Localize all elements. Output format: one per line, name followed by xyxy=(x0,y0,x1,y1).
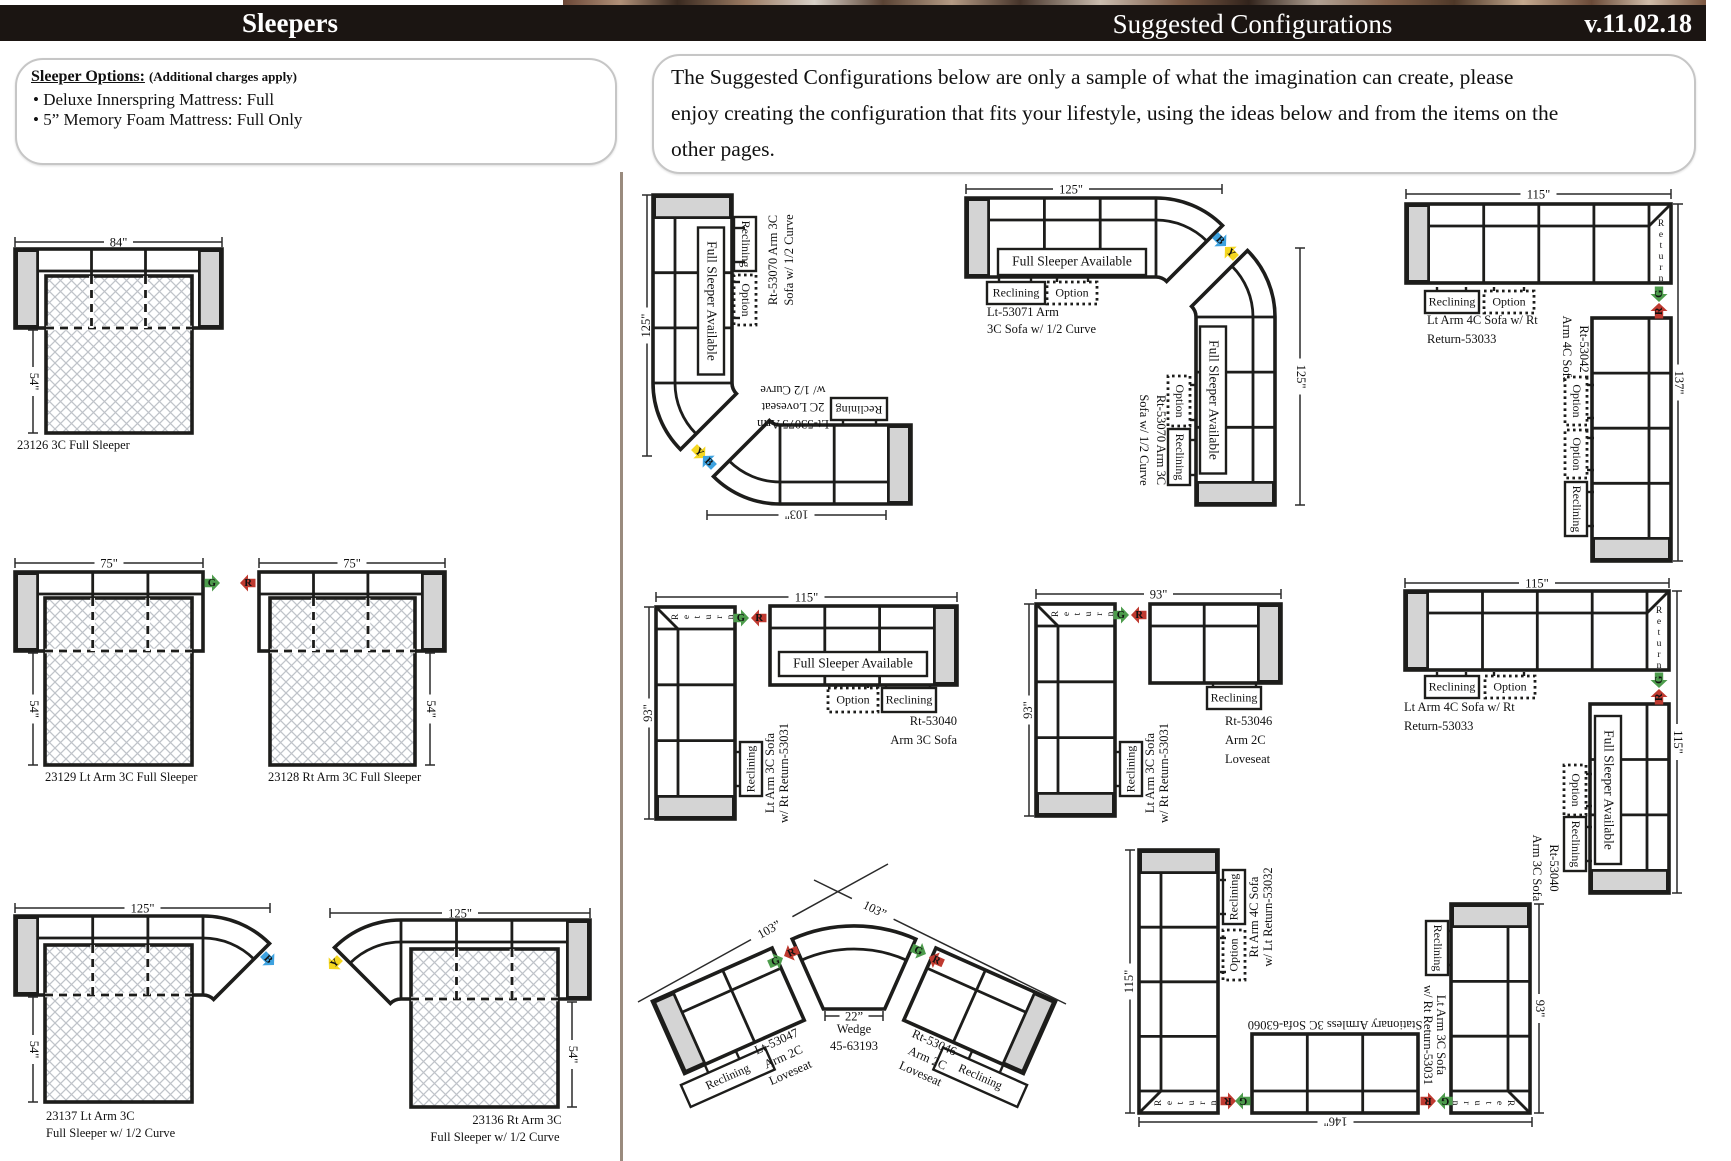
svg-text:Wedge: Wedge xyxy=(837,1022,872,1036)
svg-text:w/ Rt Return-53031: w/ Rt Return-53031 xyxy=(1421,985,1435,1085)
svg-text:54": 54" xyxy=(27,700,41,718)
svg-text:Full Sleeper Available: Full Sleeper Available xyxy=(1012,254,1132,269)
svg-text:Arm 4C Sofa: Arm 4C Sofa xyxy=(1560,316,1574,383)
svg-text:Rt-53046: Rt-53046 xyxy=(1225,714,1272,728)
svg-text:45-63193: 45-63193 xyxy=(830,1039,878,1053)
svg-text:Full Sleeper Available: Full Sleeper Available xyxy=(793,656,913,671)
svg-text:Option: Option xyxy=(1173,384,1187,417)
svg-text:Option: Option xyxy=(1493,679,1526,693)
svg-text:54": 54" xyxy=(27,1041,41,1059)
svg-text:Reclining: Reclining xyxy=(1173,434,1187,481)
svg-text:R: R xyxy=(1654,307,1665,315)
svg-text:Reclining: Reclining xyxy=(743,746,757,793)
svg-text:115": 115" xyxy=(1122,970,1136,993)
svg-text:2C Loveseat: 2C Loveseat xyxy=(761,400,824,414)
svg-text:125": 125" xyxy=(131,902,155,916)
svg-text:Option: Option xyxy=(836,692,869,706)
svg-text:G: G xyxy=(1441,1095,1449,1106)
svg-text:R: R xyxy=(1424,1095,1432,1106)
svg-text:Full Sleeper Available: Full Sleeper Available xyxy=(1206,340,1221,460)
svg-text:3C Sofa w/ 1/2 Curve: 3C Sofa w/ 1/2 Curve xyxy=(987,322,1096,336)
svg-text:Lt-53071 Arm: Lt-53071 Arm xyxy=(987,305,1059,319)
svg-text:G: G xyxy=(1654,290,1665,298)
svg-text:Option: Option xyxy=(739,283,753,316)
svg-text:Rt-53070 Arm 3C: Rt-53070 Arm 3C xyxy=(766,215,780,305)
svg-text:93": 93" xyxy=(1533,1000,1547,1018)
svg-text:R: R xyxy=(1135,610,1143,621)
svg-text:R: R xyxy=(1654,693,1665,701)
svg-text:Lt Arm 3C Sofa: Lt Arm 3C Sofa xyxy=(1434,995,1448,1076)
svg-text:125": 125" xyxy=(1059,183,1083,197)
svg-text:23137 Lt Arm 3C: 23137 Lt Arm 3C xyxy=(46,1109,135,1123)
svg-text:R: R xyxy=(755,613,763,624)
svg-text:Lt Arm 4C Sofa w/ Rt: Lt Arm 4C Sofa w/ Rt xyxy=(1404,700,1515,714)
svg-text:75": 75" xyxy=(100,557,118,571)
svg-text:23128 Rt Arm 3C Full Sleeper: 23128 Rt Arm 3C Full Sleeper xyxy=(268,770,422,784)
svg-text:w/ Lt Return-53032: w/ Lt Return-53032 xyxy=(1261,867,1275,966)
svg-text:Option: Option xyxy=(1570,437,1584,470)
svg-text:103”: 103” xyxy=(861,898,889,921)
svg-text:Rt-53070 Arm 3C: Rt-53070 Arm 3C xyxy=(1154,395,1168,485)
svg-text:Reclining: Reclining xyxy=(836,403,883,417)
svg-text:w/ Rt Return-53031: w/ Rt Return-53031 xyxy=(1157,723,1171,823)
svg-text:Reclining: Reclining xyxy=(1569,821,1583,868)
svg-text:93": 93" xyxy=(641,704,655,722)
svg-text:93": 93" xyxy=(1021,701,1035,719)
svg-text:Rt Arm 4C Sofa: Rt Arm 4C Sofa xyxy=(1247,876,1261,957)
svg-text:125": 125" xyxy=(1294,365,1308,389)
svg-text:23126 3C Full Sleeper: 23126 3C Full Sleeper xyxy=(17,438,131,452)
svg-text:Lt-53075 Arm: Lt-53075 Arm xyxy=(757,417,829,431)
svg-text:Rt-53040: Rt-53040 xyxy=(1547,844,1561,891)
svg-text:23136 Rt Arm 3C: 23136 Rt Arm 3C xyxy=(472,1113,561,1127)
svg-text:Loveseat: Loveseat xyxy=(1225,752,1271,766)
svg-text:Reclining: Reclining xyxy=(993,285,1040,299)
svg-text:146": 146" xyxy=(1324,1115,1348,1129)
svg-text:G: G xyxy=(1654,676,1665,684)
svg-text:Option: Option xyxy=(1492,294,1525,308)
svg-text:w/ Rt Return-53031: w/ Rt Return-53031 xyxy=(777,723,791,823)
svg-text:G: G xyxy=(1239,1095,1247,1106)
svg-text:Lt Arm 3C Sofa: Lt Arm 3C Sofa xyxy=(1143,732,1157,813)
svg-text:Full Sleeper Available: Full Sleeper Available xyxy=(1601,730,1616,850)
svg-text:Reclining: Reclining xyxy=(1429,294,1476,308)
svg-text:93": 93" xyxy=(1150,588,1168,602)
svg-text:R: R xyxy=(1224,1095,1232,1106)
svg-text:Option: Option xyxy=(1569,773,1583,806)
svg-text:23129 Lt Arm 3C Full Sleeper: 23129 Lt Arm 3C Full Sleeper xyxy=(45,770,198,784)
svg-text:115": 115" xyxy=(795,591,818,605)
svg-text:w/ 1/2 Curve: w/ 1/2 Curve xyxy=(760,383,826,397)
svg-text:Reclining: Reclining xyxy=(1211,690,1258,704)
svg-text:Full Sleeper w/ 1/2 Curve: Full Sleeper w/ 1/2 Curve xyxy=(430,1130,560,1144)
svg-text:Reclining: Reclining xyxy=(1123,746,1137,793)
svg-text:103”: 103” xyxy=(755,917,783,941)
svg-text:Stationary Armless 3C Sofa-630: Stationary Armless 3C Sofa-63060 xyxy=(1248,1018,1423,1032)
svg-text:Reclining: Reclining xyxy=(886,692,933,706)
svg-text:Reclining: Reclining xyxy=(1226,874,1240,921)
svg-text:Arm 2C: Arm 2C xyxy=(1225,733,1266,747)
svg-text:115": 115" xyxy=(1671,730,1685,753)
svg-text:115": 115" xyxy=(1525,577,1548,591)
svg-text:Reclining: Reclining xyxy=(1431,925,1445,972)
svg-text:Reclining: Reclining xyxy=(1570,486,1584,533)
svg-text:Sofa w/ 1/2 Curve: Sofa w/ 1/2 Curve xyxy=(782,214,796,306)
svg-text:Rt-53040: Rt-53040 xyxy=(910,714,957,728)
svg-text:54": 54" xyxy=(566,1046,580,1064)
svg-text:Option: Option xyxy=(1055,285,1088,299)
svg-text:Rt-53042: Rt-53042 xyxy=(1577,325,1591,372)
svg-text:Sofa w/ 1/2 Curve: Sofa w/ 1/2 Curve xyxy=(1137,394,1151,486)
svg-text:Option: Option xyxy=(1226,938,1240,971)
svg-text:Option: Option xyxy=(1570,384,1584,417)
svg-text:75": 75" xyxy=(343,557,361,571)
svg-text:G: G xyxy=(1117,610,1125,621)
svg-text:Arm 3C Sofa: Arm 3C Sofa xyxy=(890,733,957,747)
svg-text:R: R xyxy=(244,578,252,589)
svg-text:125": 125" xyxy=(639,314,653,338)
svg-text:137": 137" xyxy=(1672,371,1686,395)
svg-text:G: G xyxy=(208,578,216,589)
svg-text:Lt Arm 3C Sofa: Lt Arm 3C Sofa xyxy=(763,732,777,813)
svg-text:103": 103" xyxy=(785,508,809,522)
svg-text:54": 54" xyxy=(424,700,438,718)
svg-text:Return-53033: Return-53033 xyxy=(1404,719,1473,733)
svg-text:115": 115" xyxy=(1527,188,1550,202)
svg-text:G: G xyxy=(737,613,745,624)
svg-text:Return-53033: Return-53033 xyxy=(1427,332,1496,346)
svg-text:Full Sleeper Available: Full Sleeper Available xyxy=(704,241,719,361)
svg-text:Full Sleeper w/ 1/2 Curve: Full Sleeper w/ 1/2 Curve xyxy=(46,1126,176,1140)
svg-text:Arm 3C Sofa: Arm 3C Sofa xyxy=(1530,835,1544,902)
svg-text:54": 54" xyxy=(27,373,41,391)
svg-text:Lt Arm 4C Sofa w/ Rt: Lt Arm 4C Sofa w/ Rt xyxy=(1427,313,1538,327)
svg-text:Reclining: Reclining xyxy=(1429,679,1476,693)
